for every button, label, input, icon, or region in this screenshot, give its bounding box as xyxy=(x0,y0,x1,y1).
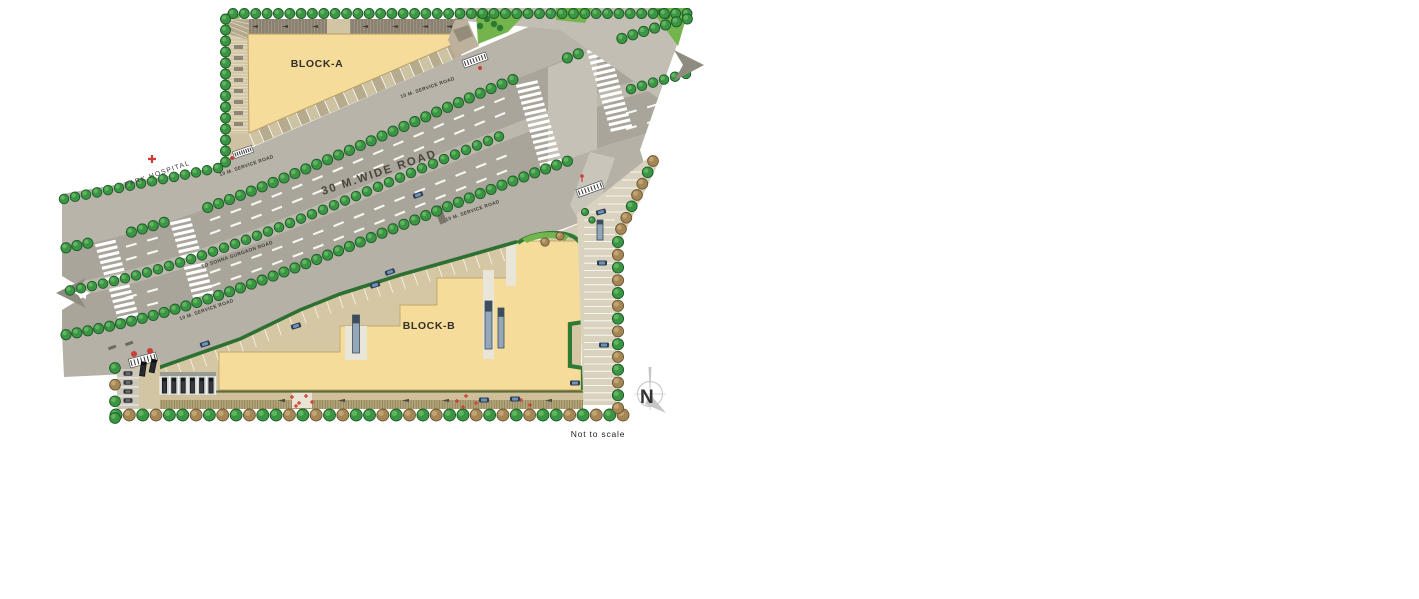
svg-text:Not to scale: Not to scale xyxy=(571,429,625,439)
svg-text:BLOCK-A: BLOCK-A xyxy=(291,58,344,70)
svg-text:BLOCK-B: BLOCK-B xyxy=(403,320,456,332)
svg-text:N: N xyxy=(640,387,654,408)
